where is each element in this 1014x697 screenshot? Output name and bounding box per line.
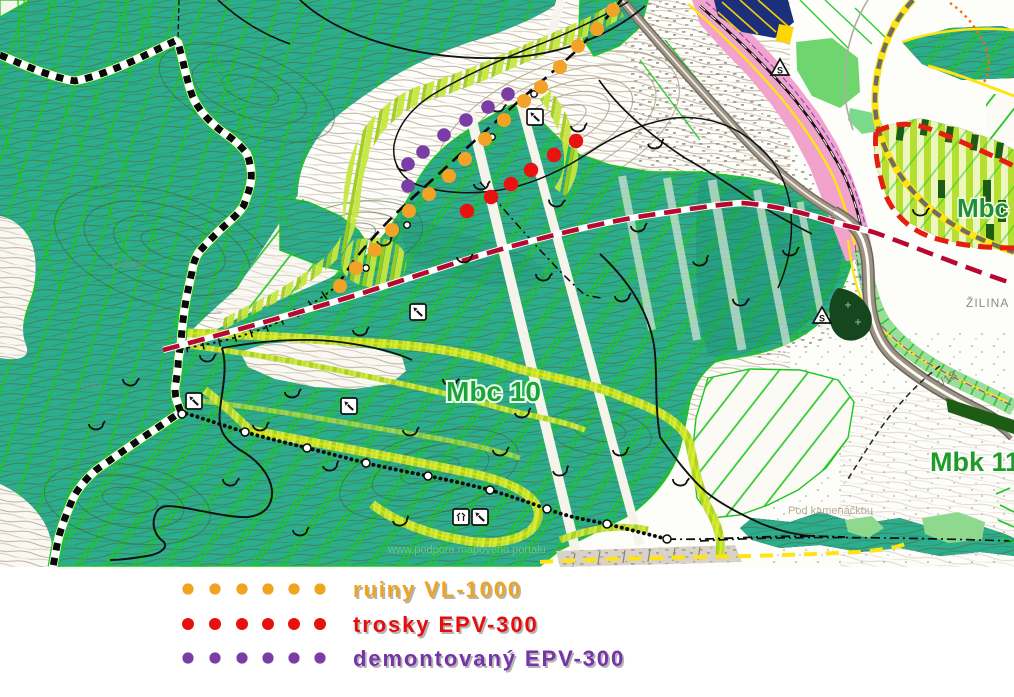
svg-text:Mbc 10: Mbc 10	[446, 376, 541, 407]
svg-text:S: S	[777, 66, 783, 76]
svg-text:Pod kamenáčkou: Pod kamenáčkou	[788, 505, 873, 517]
svg-text:S: S	[819, 314, 825, 324]
svg-text:Luky: Luky	[81, 380, 102, 391]
svg-text:ruiny VL-1000: ruiny VL-1000	[353, 577, 522, 602]
svg-text:trosky EPV-300: trosky EPV-300	[353, 612, 539, 637]
svg-text:Mbc: Mbc	[957, 193, 1009, 223]
svg-text:Dolina: Dolina	[112, 259, 144, 271]
svg-text:www.podpora.mapoveho.portalu: www.podpora.mapoveho.portalu	[387, 544, 546, 556]
svg-text:ŽILINA: ŽILINA	[966, 295, 1009, 310]
svg-text:Mbk 11: Mbk 11	[930, 447, 1014, 477]
svg-text:demontovaný EPV-300: demontovaný EPV-300	[353, 646, 625, 671]
